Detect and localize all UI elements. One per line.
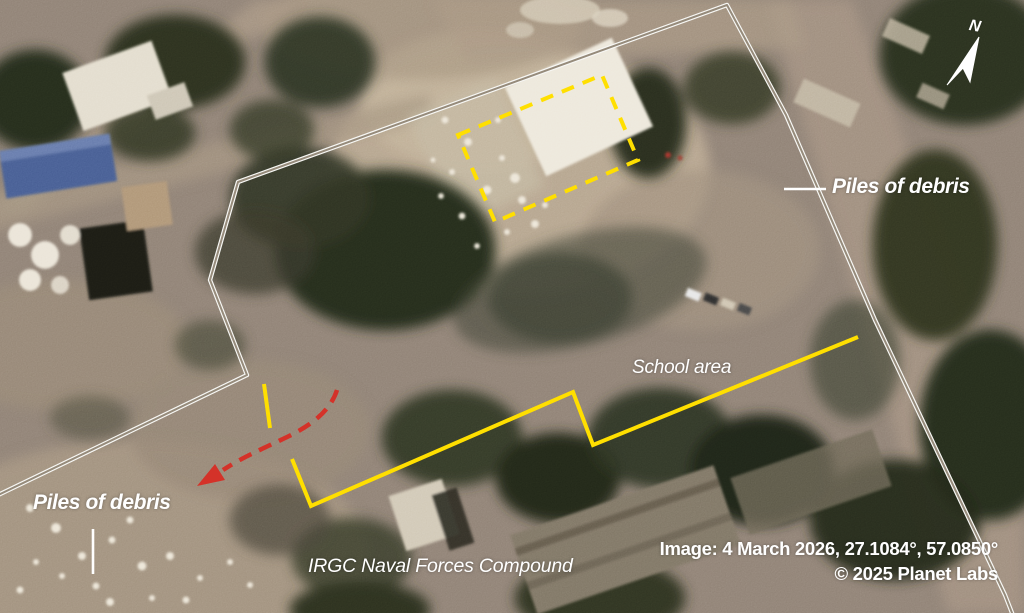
compound-boundary-outline [0, 5, 1014, 613]
school-area-boundary-segment [264, 384, 270, 428]
school-area-boundary-line [292, 337, 858, 506]
destroyed-building-dashed-box [458, 75, 638, 222]
north-label: N [968, 17, 983, 37]
label-school-area: School area [632, 357, 731, 379]
image-date-coordinates: Image: 4 March 2026, 27.1084°, 57.0850° [660, 536, 998, 561]
attribution-block: Image: 4 March 2026, 27.1084°, 57.0850° … [660, 536, 998, 586]
compound-boundary-inner-gap [0, 5, 1014, 613]
movement-arrow-dashed-path [223, 390, 337, 470]
label-piles-of-debris-bottom: Piles of debris [33, 491, 171, 515]
movement-arrow-head [197, 464, 225, 486]
annotated-satellite-figure: N Piles of debris Piles of debris School… [0, 0, 1024, 613]
annotation-overlay [0, 0, 1024, 613]
label-compound-name: IRGC Naval Forces Compound [308, 555, 573, 578]
north-arrow-icon [947, 37, 979, 85]
label-piles-of-debris-top: Piles of debris [832, 175, 970, 199]
credit-line: © 2025 Planet Labs [660, 561, 998, 586]
